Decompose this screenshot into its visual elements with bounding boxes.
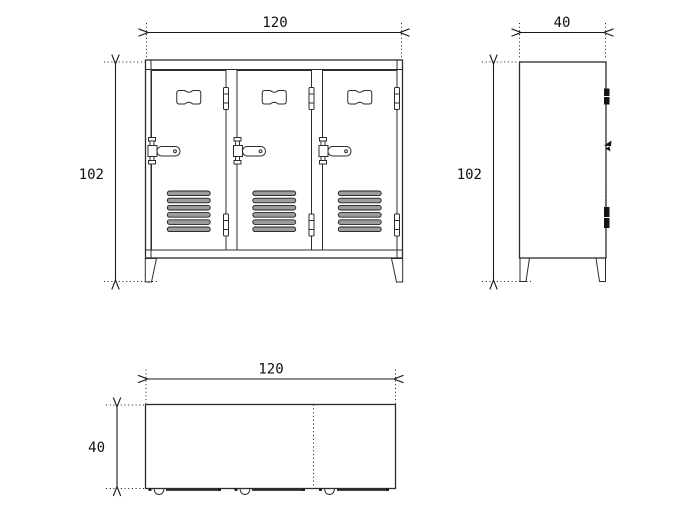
plan-latch-icon-1: [149, 489, 165, 495]
side-view: 40 102: [457, 15, 612, 282]
front-width-dimension: 120: [147, 15, 402, 59]
front-view: 120 102: [79, 15, 403, 282]
plan-front-edge-details: [149, 489, 390, 495]
plan-latch-icon-3: [319, 489, 335, 495]
side-depth-dimension: 40: [520, 15, 606, 59]
plan-width-dimension: 120: [146, 362, 396, 404]
plan-door-edge-tick-3: [386, 489, 389, 491]
plan-width-label: 120: [258, 362, 283, 378]
front-width-label: 120: [262, 15, 287, 31]
front-height-label: 102: [79, 167, 104, 183]
side-height-label: 102: [457, 167, 482, 183]
plan-door-edge-tick-1: [218, 489, 221, 491]
locker-dimension-drawing: 120 102 40: [0, 0, 688, 517]
side-leg-back: [596, 258, 606, 282]
plan-door-edge-tick-2: [302, 489, 305, 491]
plan-depth-label: 40: [88, 440, 105, 456]
side-depth-label: 40: [554, 15, 571, 31]
plan-depth-dimension: 40: [88, 405, 145, 489]
cabinet-side-outline: [520, 62, 607, 258]
front-door-1: [148, 71, 229, 251]
front-leg-left: [145, 259, 156, 283]
front-leg-right: [392, 259, 403, 283]
side-leg-front: [520, 258, 530, 282]
front-door-2: [234, 71, 315, 251]
front-door-3: [319, 71, 400, 251]
plan-latch-icon-2: [235, 489, 251, 495]
cabinet-plan-outline: [146, 405, 396, 489]
plan-view: 120 40: [88, 362, 395, 495]
technical-drawing: 120 102 40: [0, 0, 688, 517]
side-latch-icon: [604, 141, 612, 147]
side-hardware: [604, 89, 612, 229]
